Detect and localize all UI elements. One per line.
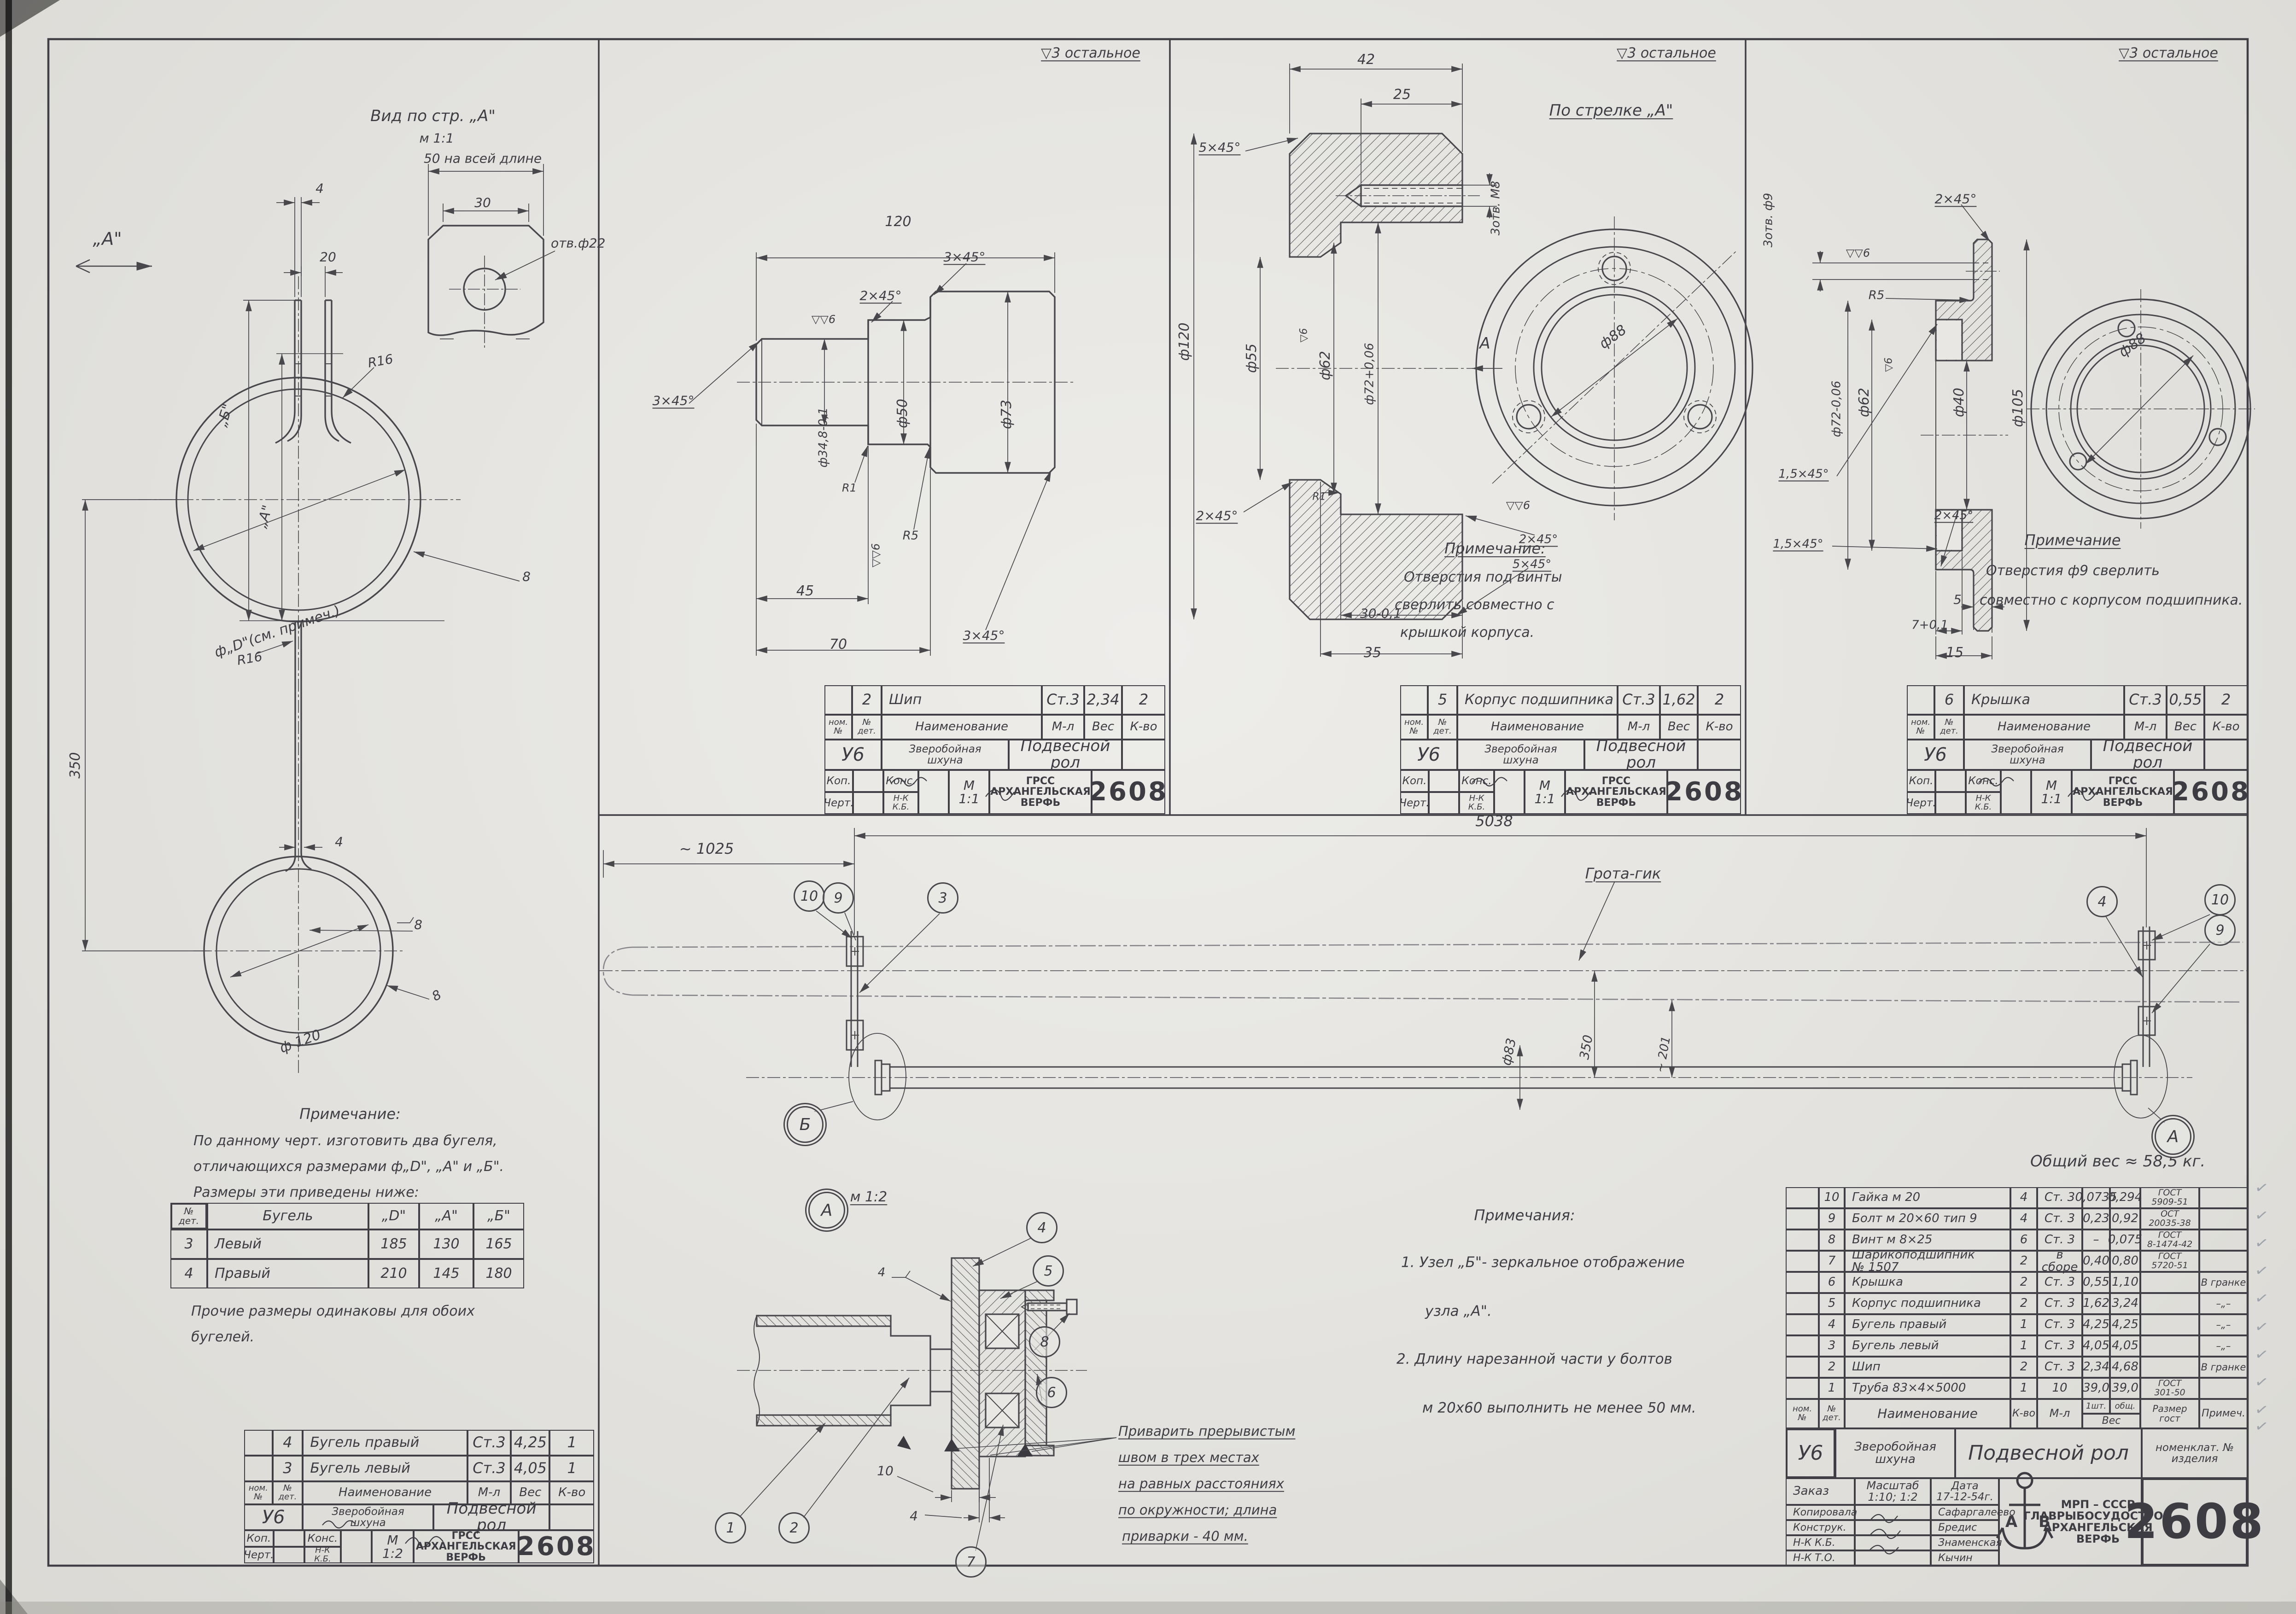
drawing-title: Подвесной рол [1955, 1428, 2142, 1478]
parts-list-cell [1786, 1208, 1819, 1229]
signature-cell [1935, 792, 1966, 814]
dim-label: отв.ф22 [551, 236, 605, 250]
dim-label: А [1479, 335, 1490, 352]
part-balloon: А [2155, 1118, 2191, 1155]
dim-label: 45 [796, 583, 814, 599]
empty-cell [1698, 740, 1741, 770]
part-balloon: 9 [823, 882, 854, 914]
parts-list-cell: 3,24 [2110, 1293, 2140, 1314]
parts-list-cell: Ст. 3 [2037, 1357, 2082, 1378]
subblock-part-cell [1400, 685, 1428, 715]
subblock-part-cell: Ст.3 [467, 1430, 511, 1456]
parts-list-cell: 2 [2010, 1293, 2037, 1314]
parts-list-cell: Бугель правый [1845, 1314, 2010, 1335]
parts-list-cell [1786, 1335, 1819, 1357]
dim-label: ф120 [1177, 323, 1192, 361]
parts-list-cell: 0,075 [2110, 1229, 2140, 1251]
subblock-header-cell: К-во [549, 1481, 594, 1504]
drawing-sheet: „А"420R16„Б"„А"ф„D"(см. примеч.)8350R164… [0, 0, 2296, 1614]
subblock-part-cell: 6 [1934, 685, 1964, 715]
subblock-part-cell: 1,62 [1660, 685, 1698, 715]
subblock-header-cell: ном. № [1400, 715, 1428, 740]
ship-name: Зверобойная шхуна [1835, 1428, 1955, 1478]
dim-label: узла „А". [1425, 1304, 1492, 1320]
parts-list-header: 1шт. [2082, 1399, 2110, 1414]
dim-label: 15 [1946, 645, 1963, 661]
drawing-number: 2608 [1667, 770, 1741, 814]
nomenclature-cell: номенклат. № изделия [2142, 1428, 2248, 1478]
parts-list-header: Вес [2082, 1414, 2140, 1428]
subblock-part-cell [244, 1456, 273, 1481]
parts-list-cell: 4,68 [2110, 1357, 2140, 1378]
signature-cell [1855, 1505, 1931, 1520]
dim-label: 7+0,1 [1911, 618, 1948, 632]
dim-label: 8 [414, 917, 422, 932]
subblock-part-cell [824, 685, 852, 715]
empty-cell [1122, 740, 1165, 770]
parts-list-cell: 6 [2010, 1229, 2037, 1251]
dim-label: ф62 [1857, 388, 1872, 417]
dim-label: Примечание: [299, 1106, 401, 1123]
subblock-part-cell: 2,34 [1084, 685, 1122, 715]
role-nk: Н-К К.Б. [1966, 792, 2001, 814]
bugel-table-header: Бугель [207, 1203, 368, 1229]
parts-list-cell [1786, 1187, 1819, 1208]
dim-label: ф72-0,06 [1830, 381, 1843, 437]
signature-cell [1494, 770, 1525, 814]
role-label: Н-К К.Б. [1786, 1535, 1855, 1550]
subblock-header-cell: М-л [2124, 715, 2167, 740]
parts-list-cell: ГОСТ 301-50 [2140, 1378, 2199, 1399]
dim-label: Отверстия ф9 сверлить [1986, 563, 2160, 579]
ship-name: Зверобойная шхуна [882, 740, 1009, 770]
role-chert: Черт. [1907, 792, 1935, 814]
role-kons: Конс. [1459, 770, 1494, 792]
dim-label: R5 [1869, 289, 1885, 302]
parts-list-cell [1786, 1229, 1819, 1251]
dim-label: 2×45° [1196, 508, 1238, 523]
parts-list-cell: Болт м 20×60 тип 9 [1845, 1208, 2010, 1229]
parts-list-cell: 4,25 [2082, 1314, 2110, 1335]
signature-cell [853, 770, 883, 792]
scale-cell: Масштаб 1:10; 1:2 [1855, 1478, 1931, 1505]
ship-name: Зверобойная шхуна [1964, 740, 2091, 770]
subblock-header-cell: Наименование [1964, 715, 2124, 740]
parts-list-cell: 0,40 [2082, 1251, 2110, 1272]
part-balloon: 9 [2204, 915, 2236, 946]
dim-label: ▽▽6 [812, 314, 835, 326]
dim-label: крышкой корпуса. [1400, 625, 1534, 641]
parts-list-cell: 10 [1819, 1187, 1845, 1208]
parts-list-cell [2199, 1378, 2248, 1399]
dim-label: ф105 [2010, 389, 2026, 427]
subblock-part-cell: 2 [1122, 685, 1165, 715]
dim-label: ~ 1025 [679, 841, 734, 857]
dim-label: м 1:2 [850, 1189, 887, 1205]
dim-label: 350 [68, 752, 83, 778]
parts-list-header: Размер гост [2140, 1399, 2199, 1428]
dim-label: Примечание: [1444, 541, 1546, 557]
role-kons: Конс. [1966, 770, 2001, 792]
parts-list-cell [1786, 1357, 1819, 1378]
dim-label: R1 [1312, 492, 1326, 503]
dim-label: R5 [903, 529, 919, 542]
dim-label: 2×45° [860, 288, 902, 303]
parts-list-cell: 0,294 [2110, 1187, 2140, 1208]
signature-cell [918, 770, 949, 814]
parts-list-cell: 4 [1819, 1314, 1845, 1335]
shipyard-name: ГРСС АРХАНГЕЛЬСКАЯ ВЕРФЬ [2072, 770, 2174, 814]
dim-label: 2×45° [1935, 192, 1977, 206]
subblock-header-cell: № дет. [273, 1481, 303, 1504]
subblock-part-cell: 4,25 [511, 1430, 549, 1456]
dim-label: 42 [1357, 52, 1375, 68]
subblock-header-cell: Вес [1084, 715, 1122, 740]
subblock-part-cell: 5 [1428, 685, 1457, 715]
dim-label: м 20х60 выполнить не менее 50 мм. [1422, 1400, 1696, 1416]
dim-label: ф72+0,06 [1363, 343, 1376, 405]
parts-list-cell: ОСТ 20035-38 [2140, 1208, 2199, 1229]
bugel-table-cell: 130 [419, 1229, 473, 1259]
parts-list-cell: 4,05 [2082, 1335, 2110, 1357]
subblock-header-cell: № дет. [1428, 715, 1457, 740]
subblock-part-cell: 4 [273, 1430, 303, 1456]
dim-label: 5×45° [1199, 140, 1241, 154]
part-balloon: А [808, 1192, 845, 1229]
dim-label: ф55 [1244, 344, 1260, 373]
parts-list-cell: –„– [2199, 1314, 2248, 1335]
subblock-part-cell [1907, 685, 1934, 715]
subblock-part-cell: 1 [549, 1456, 594, 1481]
subblock-part-cell: 2 [852, 685, 882, 715]
dim-label: 70 [830, 637, 847, 653]
bugel-table-cell: 210 [368, 1259, 419, 1288]
scale-cell: М 1:1 [949, 770, 989, 814]
empty-cell [549, 1504, 594, 1530]
parts-list-cell: 1 [1819, 1378, 1845, 1399]
drawing-title: Подвесной рол [2091, 740, 2204, 770]
bugel-table-header: „D" [368, 1203, 419, 1229]
bugel-table-cell: 3 [170, 1229, 207, 1259]
parts-list-header: Примеч. [2199, 1399, 2248, 1428]
dim-label: 3×45° [653, 393, 695, 408]
part-balloon: 2 [778, 1512, 810, 1544]
subblock-header-cell: ном. № [1907, 715, 1934, 740]
parts-list-cell [1786, 1378, 1819, 1399]
parts-list-cell [2199, 1229, 2248, 1251]
dim-label: ф73 [999, 400, 1015, 429]
project-code: У6 [244, 1504, 303, 1530]
dim-label: 50 на всей длине [424, 151, 542, 165]
parts-list-cell: 39,0 [2082, 1378, 2110, 1399]
signature-cell [274, 1530, 305, 1547]
bugel-table-cell: Правый [207, 1259, 368, 1288]
subblock-part-cell [244, 1430, 273, 1456]
parts-list-cell: – [2082, 1229, 2110, 1251]
dim-label: 4 [335, 834, 343, 849]
dim-label: на равных расстояниях [1118, 1476, 1284, 1491]
subblock-part-cell: Ст.3 [467, 1456, 511, 1481]
dim-label: 20 [320, 250, 336, 264]
part-balloon: 4 [1026, 1212, 1057, 1243]
dim-label: По стрелке „А" [1549, 102, 1673, 119]
role-nk: Н-К К.Б. [1459, 792, 1494, 814]
subblock-part-cell: Шип [882, 685, 1042, 715]
parts-list-cell [2140, 1272, 2199, 1293]
subblock-header-cell: № дет. [1934, 715, 1964, 740]
part-balloon: 4 [2086, 886, 2118, 917]
parts-list-cell [2199, 1187, 2248, 1208]
role-kop: Коп. [1400, 770, 1429, 792]
role-chert: Черт. [1400, 792, 1429, 814]
parts-list-cell: Бугель левый [1845, 1335, 2010, 1357]
parts-list-cell: Корпус подшипника [1845, 1293, 2010, 1314]
role-chert: Черт. [244, 1547, 274, 1563]
drawing-title: Подвесной рол [433, 1504, 550, 1530]
parts-list-cell: Ст. 3 [2037, 1272, 2082, 1293]
bugel-table-header: № дет. [170, 1203, 207, 1229]
parts-list-cell: 4 [2010, 1187, 2037, 1208]
bugel-table-header: „А" [419, 1203, 473, 1229]
parts-list-cell [2199, 1251, 2248, 1272]
dim-label: ф50 [895, 399, 911, 428]
scale-cell: М 1:1 [2031, 770, 2072, 814]
parts-list-cell: Шарикоподшипник № 1507 [1845, 1251, 2010, 1272]
parts-list-cell: Шип [1845, 1357, 2010, 1378]
dim-label: ▽6 [1884, 358, 1895, 372]
subblock-part-cell: Ст.3 [1618, 685, 1660, 715]
parts-list-cell: 5 [1819, 1293, 1845, 1314]
role-nk: Н-К К.Б. [883, 792, 918, 814]
dim-label: 2. Длину нарезанной части у болтов [1396, 1352, 1672, 1368]
dim-label: Примечание [2025, 532, 2121, 549]
parts-list-cell [2140, 1293, 2199, 1314]
dim-label: Размеры эти приведены ниже: [193, 1185, 419, 1200]
signer-name: Бредис [1931, 1520, 1999, 1535]
subblock-header-cell: К-во [1698, 715, 1741, 740]
shipyard-name: ГРСС АРХАНГЕЛЬСКАЯ ВЕРФЬ [1565, 770, 1667, 814]
subblock-header-cell: М-л [1042, 715, 1084, 740]
parts-list-cell: 1,62 [2082, 1293, 2110, 1314]
subblock-header-cell: Наименование [1457, 715, 1618, 740]
dim-label: Прочие размеры одинаковы для обоих [191, 1304, 475, 1319]
parts-list-cell [2140, 1314, 2199, 1335]
part-balloon: 3 [927, 882, 958, 914]
signature-cell [1429, 792, 1459, 814]
parts-list-header: общ. [2110, 1399, 2140, 1414]
drawing-title: Подвесной рол [1584, 740, 1698, 770]
dim-label: 3отв. ф9 [1762, 193, 1775, 247]
parts-list-cell: –„– [2199, 1293, 2248, 1314]
date-cell: Дата 17-12-54г. [1931, 1478, 1999, 1505]
parts-list-cell: Крышка [1845, 1272, 2010, 1293]
bugel-table-header: „Б" [473, 1203, 524, 1229]
dim-label: 5038 [1475, 813, 1513, 830]
dim-label: ▽3 остальное [1617, 46, 1716, 61]
subblock-part-cell: Ст.3 [2124, 685, 2167, 715]
parts-list-cell: 2 [2010, 1251, 2037, 1272]
bugel-table-cell: 165 [473, 1229, 524, 1259]
dim-label: 5 [1953, 592, 1962, 606]
subblock-header-cell: К-во [2204, 715, 2248, 740]
dim-label: 30 [474, 195, 491, 210]
dim-label: сверлить совместно с [1395, 597, 1554, 613]
role-kop: Коп. [244, 1530, 274, 1547]
subblock-part-cell: Бугель левый [303, 1456, 467, 1481]
parts-list-cell: 0,23 [2082, 1208, 2110, 1229]
signer-name: Сафаргалеево [1931, 1505, 1999, 1520]
drawing-number: 2608 [1092, 770, 1165, 814]
project-code: У6 [1400, 740, 1457, 770]
signature-cell [1855, 1535, 1931, 1550]
drawing-title: Подвесной рол [1009, 740, 1122, 770]
parts-list-cell: 4,25 [2110, 1314, 2140, 1335]
signer-name: Кычин [1931, 1550, 1999, 1566]
parts-list-cell: 2 [2010, 1272, 2037, 1293]
dim-label: R1 [842, 482, 857, 495]
order-label: Заказ [1786, 1478, 1855, 1505]
shipyard-name: ГРСС АРХАНГЕЛЬСКАЯ ВЕРФЬ [989, 770, 1092, 814]
part-balloon: 6 [1036, 1377, 1067, 1408]
shipyard-name: МРП – СССР ГЛАВРЫБОСУДОСТРОЙ АРХАНГЕЛЬСК… [1999, 1478, 2142, 1566]
dim-label: совместно с корпусом подшипника. [1980, 593, 2243, 608]
bugel-table-cell: Левый [207, 1229, 368, 1259]
dim-label: 10 [877, 1463, 894, 1478]
role-kons: Конс. [883, 770, 918, 792]
signature-cell [2001, 770, 2031, 814]
role-kons: Конс. [304, 1530, 340, 1547]
dim-label: приварки - 40 мм. [1122, 1529, 1248, 1544]
parts-list-header: М-л [2037, 1399, 2082, 1428]
parts-list-cell: 10 [2037, 1378, 2082, 1399]
dim-label: ▽3 остальное [1041, 46, 1140, 61]
parts-list-cell: 7 [1819, 1251, 1845, 1272]
role-nk: Н-К К.Б. [304, 1547, 340, 1563]
parts-list-cell [2199, 1208, 2248, 1229]
dim-label: ф34,8-0,1 [817, 408, 830, 468]
subblock-part-cell: 3 [273, 1456, 303, 1481]
dim-label: 25 [1393, 87, 1411, 103]
subblock-header-cell: ном. № [244, 1481, 273, 1504]
dim-label: 1,5×45° [1773, 537, 1823, 551]
part-balloon: 10 [2204, 884, 2236, 915]
bugel-table-cell: 4 [170, 1259, 207, 1288]
parts-list-cell: 39,0 [2110, 1378, 2140, 1399]
part-balloon: 7 [955, 1546, 987, 1578]
bugel-table-cell: 180 [473, 1259, 524, 1288]
subblock-header-cell: М-л [1618, 715, 1660, 740]
parts-list-cell: Ст. 3 [2037, 1293, 2082, 1314]
dim-label: швом в трех местах [1118, 1450, 1259, 1465]
project-code: У6 [1907, 740, 1964, 770]
dim-label: ф62 [1318, 351, 1333, 380]
subblock-part-cell: 1 [549, 1430, 594, 1456]
drawing-number: 2608 [519, 1530, 594, 1563]
dim-label: 4 [878, 1266, 886, 1279]
parts-list-cell: 8 [1819, 1229, 1845, 1251]
parts-list-header: № дет. [1819, 1399, 1845, 1428]
drawing-number: 2608 [2174, 770, 2248, 814]
parts-list-cell: ГОСТ 5909-51 [2140, 1187, 2199, 1208]
parts-list-cell: 1 [2010, 1335, 2037, 1357]
parts-list-cell: ГОСТ 8-1474-42 [2140, 1229, 2199, 1251]
scale-cell: М 1:1 [1525, 770, 1565, 814]
dim-label: 120 [885, 214, 911, 230]
signature-cell [1935, 770, 1966, 792]
dim-label: Вид по стр. „А" [370, 107, 496, 125]
parts-list-cell [1786, 1314, 1819, 1335]
parts-list-cell: 0,55 [2082, 1272, 2110, 1293]
parts-list-cell: 6 [1819, 1272, 1845, 1293]
signature-cell [853, 792, 883, 814]
subblock-part-cell: Бугель правый [303, 1430, 467, 1456]
subblock-header-cell: Вес [2167, 715, 2204, 740]
role-label: Н-К Т.О. [1786, 1550, 1855, 1566]
dim-label: Общий вес ≈ 58,5 кг. [2030, 1153, 2205, 1170]
role-kop: Коп. [824, 770, 853, 792]
part-balloon: 5 [1033, 1255, 1064, 1287]
parts-list-cell [2140, 1357, 2199, 1378]
subblock-part-cell: 0,55 [2167, 685, 2204, 715]
parts-list-cell: 4,05 [2110, 1335, 2140, 1357]
parts-list-cell: 1 [2010, 1314, 2037, 1335]
project-code: У6 [824, 740, 882, 770]
dim-label: 4 [315, 181, 324, 195]
subblock-part-cell: Крышка [1964, 685, 2124, 715]
subblock-header-cell: № дет. [852, 715, 882, 740]
role-label: Конструк. [1786, 1520, 1855, 1535]
dim-label: 3отв. М8 [1489, 181, 1502, 235]
parts-list-cell: 2 [2010, 1357, 2037, 1378]
parts-list-cell [1786, 1251, 1819, 1272]
role-chert: Черт. [824, 792, 853, 814]
ship-name: Зверобойная шхуна [303, 1504, 433, 1530]
parts-list-cell: 1 [2010, 1378, 2037, 1399]
dim-label: Приварить прерывистым [1118, 1424, 1295, 1439]
dim-label: 3×45° [944, 250, 986, 264]
dim-label: 4 [910, 1509, 918, 1523]
signer-name: Знаменская [1931, 1535, 1999, 1550]
dim-label: ▽3 остальное [2119, 46, 2218, 61]
dim-label: 1. Узел „Б"- зеркальное отображение [1401, 1255, 1685, 1271]
role-kop: Коп. [1907, 770, 1935, 792]
dim-label: Грота-гик [1585, 866, 1661, 882]
parts-list-cell: Ст. 3 [2037, 1208, 2082, 1229]
role-label: Копировала [1786, 1505, 1855, 1520]
parts-list-cell: Гайка м 20 [1845, 1187, 2010, 1208]
part-balloon: Б [787, 1106, 824, 1143]
parts-list-cell: В гранке [2199, 1357, 2248, 1378]
signature-cell [1429, 770, 1459, 792]
parts-list-cell [1786, 1293, 1819, 1314]
parts-list-cell: 4 [2010, 1208, 2037, 1229]
signature-cell [1855, 1520, 1931, 1535]
dim-label: отличающихся размерами ф„D", „А" и „Б". [193, 1159, 504, 1175]
parts-list-cell: 2,34 [2082, 1357, 2110, 1378]
dim-label: ф40 [1951, 388, 1967, 417]
parts-list-cell: Труба 83×4×5000 [1845, 1378, 2010, 1399]
dim-label: бугелей. [191, 1329, 254, 1345]
part-balloon: 8 [1029, 1326, 1060, 1358]
subblock-part-cell: Корпус подшипника [1457, 685, 1618, 715]
parts-list-cell: В гранке [2199, 1272, 2248, 1293]
dim-label: 1,5×45° [1778, 467, 1829, 481]
part-balloon: 10 [794, 880, 825, 912]
drawing-number: 2608 [2142, 1478, 2248, 1566]
signature-cell [274, 1547, 305, 1563]
shipyard-name: ГРСС АРХАНГЕЛЬСКАЯ ВЕРФЬ [414, 1530, 519, 1563]
parts-list-cell: 1,10 [2110, 1272, 2140, 1293]
